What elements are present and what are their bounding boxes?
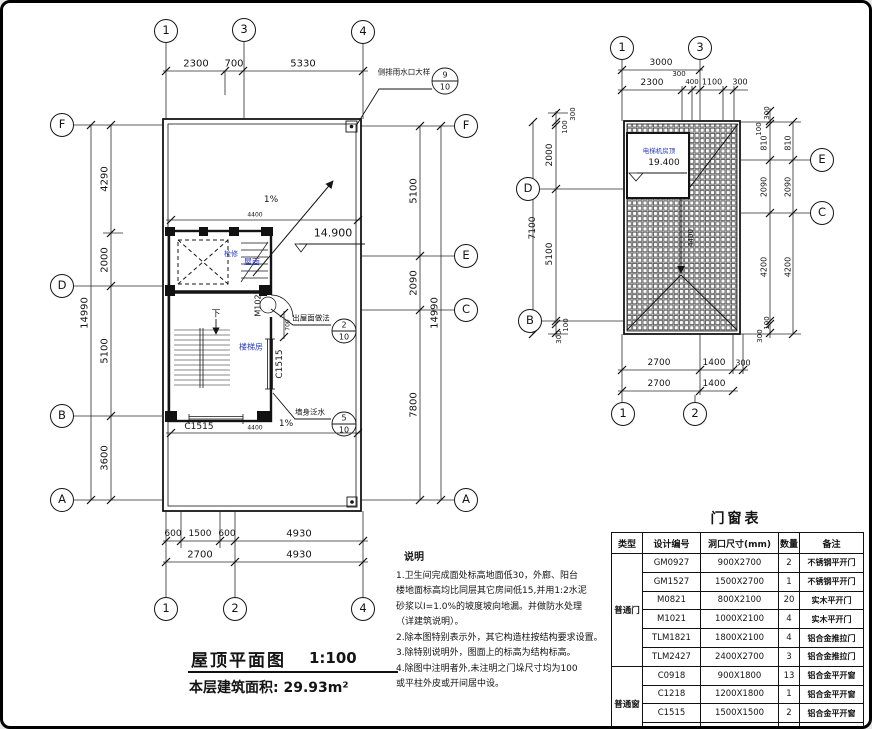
left_plan-dims-top-0: 2300 — [183, 59, 208, 70]
table-row: M0821800X210020实木平开门 — [612, 591, 864, 610]
axis-bubble-2: 2 — [683, 402, 707, 426]
axis-bubble-3: 3 — [688, 36, 712, 60]
table-row: C15151500X15002铝合金平开窗 — [612, 704, 864, 723]
table-row: C15181500X180014铝合金平开窗 — [612, 723, 864, 729]
axis-bubble-E: E — [810, 148, 834, 172]
right_plan-dims-bottom_row2-0: 2700 — [648, 379, 671, 389]
right_plan-dims-bottom_row1-1: 1400 — [703, 358, 726, 368]
table-row: 普通窗C0918900X180013铝合金平开窗 — [612, 666, 864, 685]
left_plan-callouts-0-num: 9 — [442, 71, 447, 80]
schedule-header: 类型设计编号洞口尺寸(mm)数量备注 — [612, 533, 864, 554]
right_plan-dims-left-1: 100 — [561, 120, 569, 133]
left_plan-callouts-1-text: 出屋面做法 — [292, 313, 330, 324]
left_plan-labels-stair_room: 楼梯房 — [239, 342, 263, 353]
schedule-cell: 2 — [779, 704, 800, 723]
schedule-cell: 20 — [779, 591, 800, 610]
schedule-table: 类型设计编号洞口尺寸(mm)数量备注 普通门GM0927900X27002不锈钢… — [611, 532, 864, 729]
right_plan-labels-room: 电梯机房顶 — [643, 145, 676, 155]
axis-bubble-E: E — [454, 244, 478, 268]
right_plan-dims-right_inner-5: 100 — [763, 316, 771, 329]
schedule-col-header: 设计编号 — [643, 533, 701, 554]
left_plan-dims-top-1: 700 — [224, 59, 243, 70]
table-row: TLM24272400X27003铝合金推拉门 — [612, 647, 864, 666]
schedule-cell: 2400X2700 — [701, 647, 779, 666]
axis-bubble-B: B — [518, 309, 542, 333]
schedule-cell: 900X1800 — [701, 666, 779, 685]
right_plan-dims-left-0: 300 — [569, 107, 577, 120]
door-window-schedule: 门窗表 类型设计编号洞口尺寸(mm)数量备注 普通门GM0927900X2700… — [611, 508, 861, 729]
right_plan-dims-top_row2-4: 300 — [732, 78, 747, 87]
axis-bubble-A: A — [454, 488, 478, 512]
note-line: 1.卫生间完成面处标高地面低30，外廊、阳台 — [396, 569, 614, 585]
axis-bubble-B: B — [50, 404, 74, 428]
machine-room-plan — [624, 121, 740, 334]
note-line: 楼地面标高均比同层其它房间低15,并用1:2水泥 — [396, 584, 614, 600]
schedule-cell: 实木平开门 — [800, 610, 864, 629]
axis-bubble-D: D — [516, 177, 540, 201]
note-line: 砂浆以I=1.0%的坡度坡向地漏。并做防水处理 — [396, 600, 614, 616]
right_plan-dims-left-4: 100 — [562, 318, 570, 331]
schedule-cell: 不锈钢平开门 — [800, 554, 864, 573]
left_plan-callouts-2-den: 10 — [339, 426, 349, 435]
left_plan-dims-left-0: 4290 — [100, 166, 111, 191]
schedule-cell: GM0927 — [643, 554, 701, 573]
axis-bubble-2: 2 — [223, 597, 247, 621]
axis-bubble-4: 4 — [351, 597, 375, 621]
right_plan-dims-right_inner-1: 100 — [755, 122, 763, 135]
left_plan-dims-right-0: 5100 — [409, 178, 420, 203]
left_plan-dims-right-2: 7800 — [409, 392, 420, 417]
right_plan-dims-right_outer-2: 4200 — [784, 257, 793, 277]
schedule-cell: 2 — [779, 554, 800, 573]
left_plan-dims-bottom_row2-0: 2700 — [187, 550, 212, 561]
left_plan-labels-slope_top: 1% — [264, 195, 278, 205]
left_plan-labels-down: 下 — [211, 307, 220, 320]
right_plan-dims-right_inner-0: 300 — [763, 106, 771, 119]
left_plan-callouts-0-den: 10 — [440, 83, 450, 92]
left_plan-dims-left-2: 5100 — [100, 338, 111, 363]
schedule-cell: M1021 — [643, 610, 701, 629]
schedule-type-cell: 普通窗 — [612, 666, 643, 729]
right_plan-dims-top_row2-1: 300 — [672, 70, 685, 78]
left_plan-labels-door: M1021 — [254, 289, 263, 316]
schedule-type-cell: 普通门 — [612, 554, 643, 667]
schedule-cell: 1 — [779, 685, 800, 704]
left_plan-dims-inner_bottom: 4400 — [247, 425, 262, 432]
note-line: 或平柱外皮或开间居中设。 — [396, 677, 614, 693]
axis-bubble-1: 1 — [154, 19, 178, 43]
left_plan-labels-window_bottom: C1515 — [184, 422, 213, 432]
right_plan-dims-top_row2-0: 2300 — [641, 78, 664, 88]
schedule-rows: 普通门GM0927900X27002不锈钢平开门GM15271500X27001… — [612, 554, 864, 729]
right_plan-dims-right_inner-6: 300 — [756, 329, 764, 342]
axis-bubble-1: 1 — [154, 597, 178, 621]
right_plan-dims-left-2: 2000 — [545, 144, 555, 167]
construction-notes: 说明 1.卫生间完成面处标高地面低30，外廊、阳台楼地面标高均比同层其它房间低1… — [396, 550, 614, 693]
schedule-cell: 4 — [779, 629, 800, 648]
table-row: 普通门GM0927900X27002不锈钢平开门 — [612, 554, 864, 573]
schedule-cell: 1500X1500 — [701, 704, 779, 723]
schedule-cell: 铝合金推拉门 — [800, 647, 864, 666]
right_plan-dims-left_total: 7100 — [528, 217, 538, 240]
schedule-cell: 铝合金推拉门 — [800, 629, 864, 648]
axis-bubble-C: C — [454, 298, 478, 322]
left_plan-dims-door_side: 700 — [285, 319, 292, 330]
left_plan-dims-bottom_row1-0: 600 — [164, 529, 181, 539]
schedule-cell: 1200X1800 — [701, 685, 779, 704]
floor-area: 本层建筑面积: 29.93m² — [189, 677, 348, 697]
left_plan-dims-bottom_row1-1: 1500 — [189, 529, 212, 539]
schedule-cell: 1 — [779, 572, 800, 591]
schedule-cell: C1518 — [643, 723, 701, 729]
left_plan-labels-window_side: C1515 — [275, 349, 285, 378]
axis-bubble-F: F — [454, 114, 478, 138]
schedule-cell: 铝合金平开窗 — [800, 685, 864, 704]
schedule-cell: TLM2427 — [643, 647, 701, 666]
stair-treads — [174, 330, 230, 385]
right_plan-dims-right_outer-1: 2090 — [784, 177, 793, 197]
callout-leaders — [271, 68, 458, 436]
left_plan-dims-right-1: 2090 — [409, 270, 420, 295]
schedule-col-header: 类型 — [612, 533, 643, 554]
schedule-cell: 900X2700 — [701, 554, 779, 573]
right_plan-dims-top_row2-3: 1100 — [702, 78, 722, 87]
left_plan-callouts-1-num: 2 — [341, 321, 346, 330]
notes-heading: 说明 — [396, 550, 614, 566]
drawing-sheet: 2300700533042902000510036001499051002090… — [0, 0, 872, 729]
schedule-cell: 铝合金平开窗 — [800, 704, 864, 723]
schedule-cell: 实木平开门 — [800, 591, 864, 610]
right_plan-dims-bottom_row1-2: 300 — [735, 359, 750, 368]
right_plan-dims-top_row2-2: 400 — [685, 78, 698, 86]
table-row: M10211000X21004实木平开门 — [612, 610, 864, 629]
schedule-cell: 13 — [779, 666, 800, 685]
schedule-cell: 1800X2100 — [701, 629, 779, 648]
schedule-cell: 铝合金平开窗 — [800, 723, 864, 729]
schedule-cell: C1218 — [643, 685, 701, 704]
schedule-cell: 铝合金平开窗 — [800, 666, 864, 685]
schedule-cell: 4 — [779, 610, 800, 629]
note-line: 3.除特别说明外，图面上的标高为结构标高。 — [396, 646, 614, 662]
axis-bubble-1: 1 — [611, 402, 635, 426]
left_plan-dims-inner_top: 4400 — [247, 212, 262, 219]
right_plan-dims-ridge: 4400 — [687, 229, 695, 247]
right_plan-labels-elevation: 19.400 — [648, 158, 680, 168]
left_plan-labels-roof: 屋面 — [244, 257, 260, 268]
schedule-col-header: 数量 — [779, 533, 800, 554]
schedule-cell: 1500X2700 — [701, 572, 779, 591]
left_plan-labels-elevation: 14.900 — [314, 227, 353, 240]
schedule-title: 门窗表 — [611, 508, 861, 528]
right_plan-dims-bottom_row2-1: 1400 — [703, 379, 726, 389]
right_plan-dims-top_row1: 3000 — [650, 58, 673, 68]
note-line: 2.除本图特别表示外，其它构造柱按结构要求设置。 — [396, 631, 614, 647]
axis-bubble-D: D — [50, 274, 74, 298]
table-row: TLM18211800X21004铝合金推拉门 — [612, 629, 864, 648]
axis-bubble-C: C — [810, 201, 834, 225]
left_plan-callouts-2-text: 墙身泛水 — [295, 407, 325, 418]
left_plan-callouts-1-den: 10 — [339, 333, 349, 342]
plan-title: 屋顶平面图 — [191, 646, 286, 671]
axis-bubble-1: 1 — [610, 36, 634, 60]
left_plan-dims-right_total: 14990 — [430, 297, 441, 329]
right_plan-dims-right_inner-3: 2090 — [760, 177, 769, 197]
right_plan-dims-right_inner-4: 4200 — [760, 257, 769, 277]
left_plan-callouts-2-num: 5 — [341, 414, 346, 423]
right_plan-dims-left-3: 5100 — [545, 243, 555, 266]
axis-bubble-F: F — [50, 113, 74, 137]
notes-body: 1.卫生间完成面处标高地面低30，外廊、阳台楼地面标高均比同层其它房间低15,并… — [396, 569, 614, 693]
schedule-cell: 14 — [779, 723, 800, 729]
schedule-cell: C1515 — [643, 704, 701, 723]
schedule-col-header: 备注 — [800, 533, 864, 554]
left_plan-dims-bottom_row2-1: 4930 — [286, 550, 311, 561]
left_plan-dims-bottom_row1-2: 600 — [218, 529, 235, 539]
table-row: C12181200X18001铝合金平开窗 — [612, 685, 864, 704]
axis-bubble-3: 3 — [232, 18, 256, 42]
title-underline — [188, 671, 398, 673]
note-line: 4.除图中注明者外,未注明之门垛尺寸均为100 — [396, 662, 614, 678]
schedule-col-header: 洞口尺寸(mm) — [701, 533, 779, 554]
schedule-cell: M0821 — [643, 591, 701, 610]
schedule-cell: TLM1821 — [643, 629, 701, 648]
left_plan-dims-left-3: 3600 — [100, 445, 111, 470]
axis-bubble-A: A — [50, 488, 74, 512]
schedule-cell: 1500X1800 — [701, 723, 779, 729]
left_plan-dims-top-2: 5330 — [290, 59, 315, 70]
right_plan-dims-bottom_row1-0: 2700 — [648, 358, 671, 368]
table-row: GM15271500X27001不锈钢平开门 — [612, 572, 864, 591]
right_plan-dims-left-5: 300 — [555, 330, 563, 343]
left_plan-labels-inspection: 检修 — [224, 249, 238, 259]
left_plan-labels-slope_bottom: 1% — [279, 419, 293, 429]
schedule-cell: GM1527 — [643, 572, 701, 591]
schedule-cell: C0918 — [643, 666, 701, 685]
schedule-cell: 1000X2100 — [701, 610, 779, 629]
note-line: （详建筑说明）。 — [396, 615, 614, 631]
left_plan-dims-bottom_row1-3: 4930 — [286, 529, 311, 540]
left_plan-dims-left_total: 14990 — [80, 297, 91, 329]
axis-bubble-4: 4 — [351, 20, 375, 44]
schedule-cell: 3 — [779, 647, 800, 666]
left_plan-dims-left-1: 2000 — [100, 247, 111, 272]
schedule-cell: 800X2100 — [701, 591, 779, 610]
plan-scale: 1:100 — [309, 649, 357, 667]
right_plan-dims-right_outer-0: 810 — [784, 135, 793, 150]
right_plan-dims-right_inner-2: 810 — [760, 135, 769, 150]
schedule-cell: 不锈钢平开门 — [800, 572, 864, 591]
left_plan-callouts-0-text: 侧排雨水口大样 — [378, 67, 431, 78]
